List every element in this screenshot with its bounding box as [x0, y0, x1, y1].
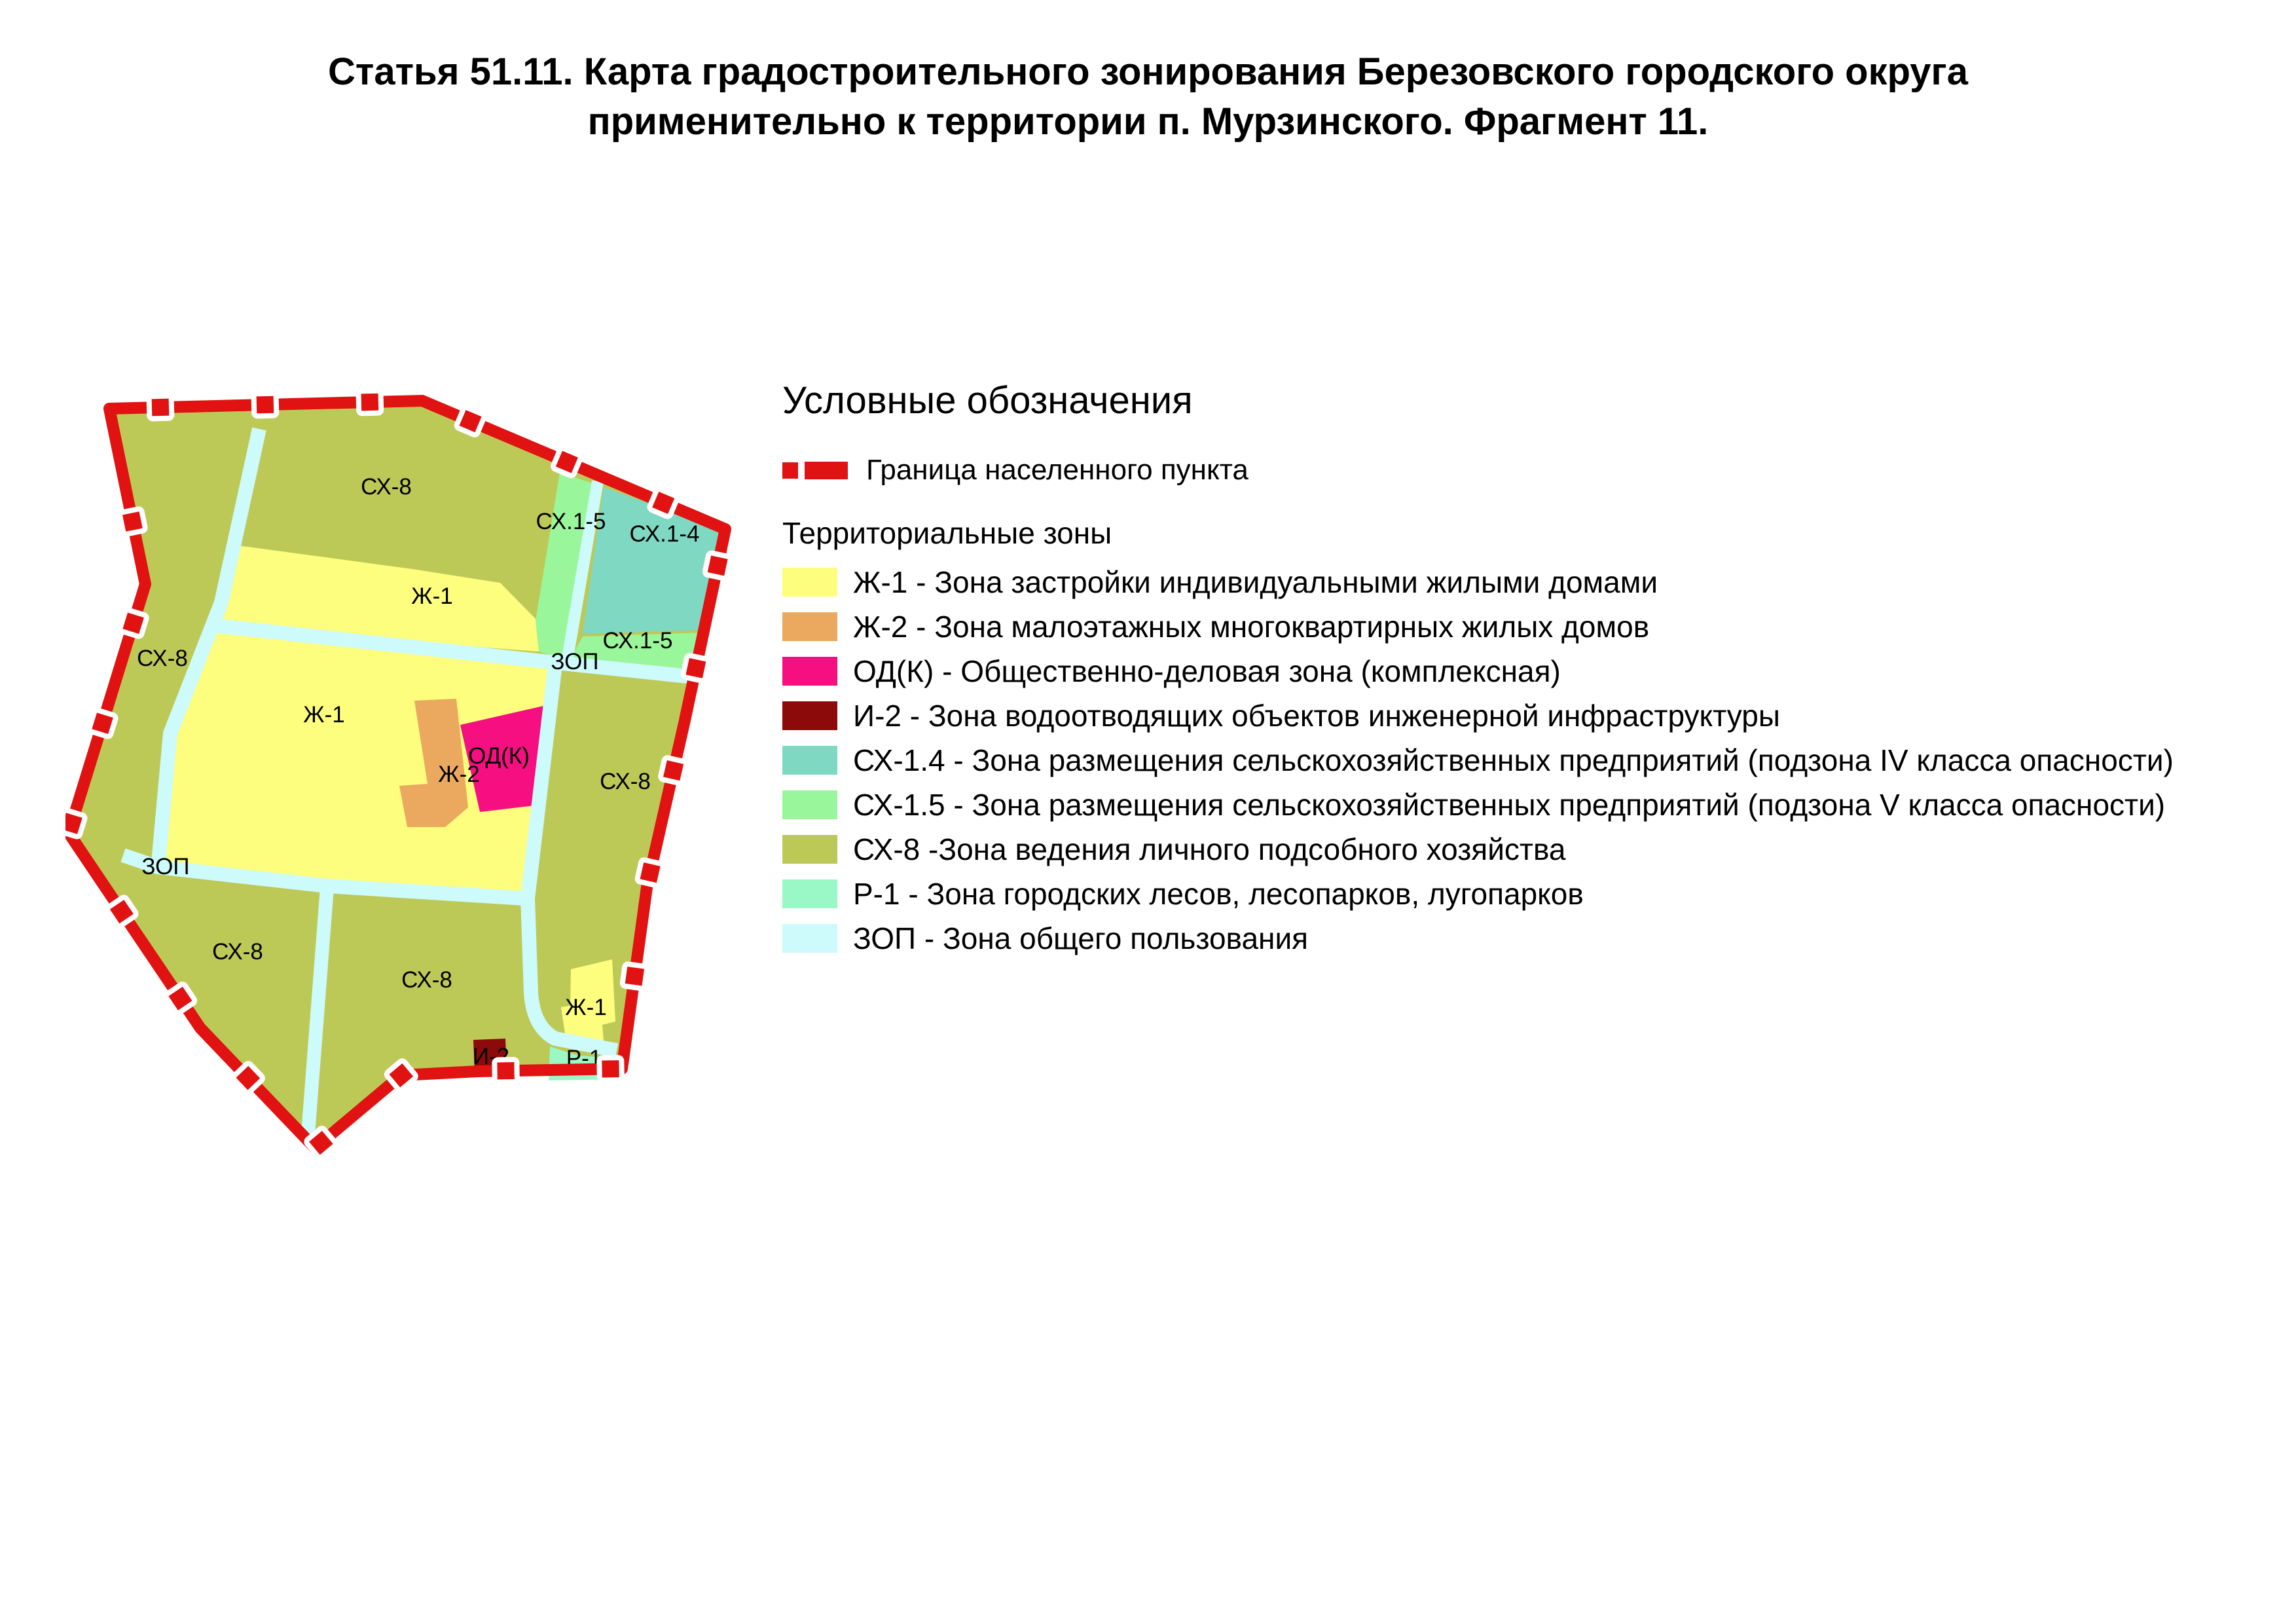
legend-item-label: СХ-8 -Зона ведения личного подсобного хо… — [853, 832, 1565, 867]
legend-items: Ж-1 - Зона застройки индивидуальными жил… — [782, 568, 2174, 953]
legend-item-label: ЗОП - Зона общего пользования — [853, 921, 1308, 956]
map-label: Ж-2 — [438, 762, 479, 787]
legend-swatch-ЗОП — [782, 924, 837, 953]
legend-item: ОД(К) - Общественно-деловая зона (компле… — [782, 657, 2174, 686]
legend-swatch-СХ-1.4 — [782, 746, 837, 775]
legend-item: Р-1 - Зона городских лесов, лесопарков, … — [782, 879, 2174, 908]
legend-swatch-Ж-2 — [782, 612, 837, 641]
legend-boundary-row: Граница населенного пункта — [782, 454, 2174, 487]
legend-item: Ж-1 - Зона застройки индивидуальными жил… — [782, 568, 2174, 597]
legend-swatch-СХ-1.5 — [782, 790, 837, 819]
map-label: СХ-8 — [401, 967, 452, 993]
boundary-marker-icon — [701, 549, 734, 582]
map-label: СХ.1-5 — [536, 509, 606, 534]
page-title-line2: применительно к территории п. Мурзинског… — [0, 97, 2296, 147]
map-label: Ж-1 — [565, 995, 606, 1020]
boundary-label: Граница населенного пункта — [866, 454, 1248, 487]
legend-heading: Условные обозначения — [782, 378, 2174, 422]
zones-heading: Территориальные зоны — [782, 515, 2174, 551]
legend-item-label: Ж-2 - Зона малоэтажных многоквартирных ж… — [853, 609, 1649, 644]
legend-item: ЗОП - Зона общего пользования — [782, 924, 2174, 953]
legend-item-label: Ж-1 - Зона застройки индивидуальными жил… — [853, 564, 1658, 600]
legend-swatch-СХ-8 — [782, 835, 837, 864]
legend-item-label: И-2 - Зона водоотводящих объектов инжене… — [853, 698, 1780, 733]
legend-item-label: ОД(К) - Общественно-деловая зона (компле… — [853, 654, 1561, 689]
boundary-marker-icon — [596, 1055, 625, 1083]
boundary-marker-icon — [492, 1057, 520, 1085]
map-label: Ж-1 — [411, 583, 452, 609]
map-label: СХ.1-5 — [603, 628, 673, 654]
boundary-marker-icon — [619, 961, 650, 991]
legend-swatch-И-2 — [782, 701, 837, 730]
map-label: СХ-8 — [361, 474, 412, 500]
legend-swatch-Ж-1 — [782, 568, 837, 597]
boundary-marker-icon — [680, 652, 712, 684]
legend-swatch-Р-1 — [782, 879, 837, 908]
map-svg: СХ-8СХ.1-5СХ.1-4Ж-1СХ.1-5ЗОПСХ-8Ж-1ОД(К)… — [65, 367, 786, 1205]
legend-item: СХ-8 -Зона ведения личного подсобного хо… — [782, 835, 2174, 864]
page-title: Статья 51.11. Карта градостроительного з… — [0, 47, 2296, 147]
page-title-line1: Статья 51.11. Карта градостроительного з… — [0, 47, 2296, 97]
legend-item: СХ-1.4 - Зона размещения сельскохозяйств… — [782, 746, 2174, 775]
legend-item: Ж-2 - Зона малоэтажных многоквартирных ж… — [782, 612, 2174, 641]
map-label: СХ.1-4 — [630, 521, 700, 547]
map-label: ЗОП — [551, 649, 598, 674]
map-label: СХ-8 — [212, 939, 263, 965]
map-label: Ж-1 — [303, 702, 344, 728]
boundary-line-icon — [782, 462, 856, 479]
boundary-marker-icon — [251, 391, 279, 419]
legend-item-label: Р-1 - Зона городских лесов, лесопарков, … — [853, 876, 1584, 912]
boundary-marker-icon — [146, 394, 174, 422]
map-label: СХ-8 — [600, 769, 651, 794]
legend-item: И-2 - Зона водоотводящих объектов инжене… — [782, 701, 2174, 730]
map-label: ЗОП — [141, 854, 189, 879]
boundary-marker-icon — [117, 506, 149, 538]
boundary-marker-icon — [355, 388, 384, 416]
legend-swatch-ОД(К) — [782, 657, 837, 686]
boundary-dash-icon — [805, 462, 848, 479]
boundary-dot-icon — [782, 462, 798, 479]
map-label: СХ-8 — [137, 646, 188, 671]
legend-item: СХ-1.5 - Зона размещения сельскохозяйств… — [782, 790, 2174, 819]
legend-item-label: СХ-1.4 - Зона размещения сельскохозяйств… — [853, 743, 2174, 778]
legend: Условные обозначения Граница населенного… — [782, 378, 2174, 953]
legend-item-label: СХ-1.5 - Зона размещения сельскохозяйств… — [853, 787, 2165, 822]
